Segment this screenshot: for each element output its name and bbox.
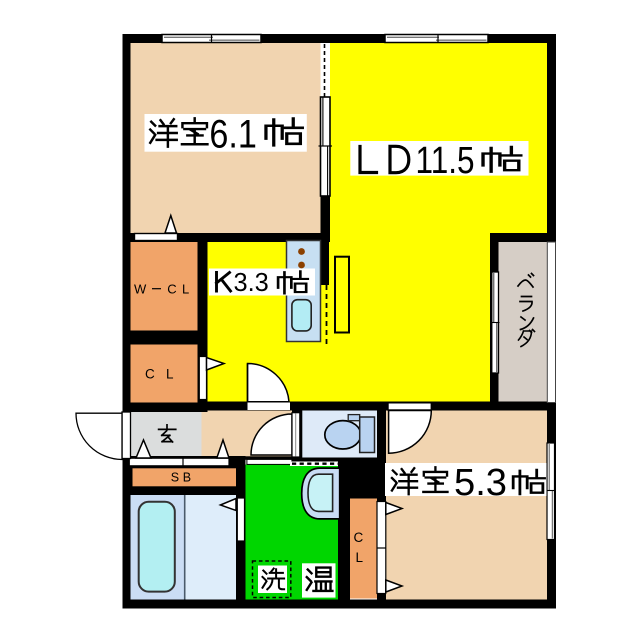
svg-text:B: B <box>183 471 191 485</box>
svg-text:L: L <box>166 367 174 382</box>
svg-text:11.5: 11.5 <box>416 140 475 182</box>
svg-text:C: C <box>354 530 364 545</box>
svg-text:S: S <box>171 471 179 485</box>
svg-text:3.3: 3.3 <box>234 267 269 297</box>
svg-text:C: C <box>145 367 155 382</box>
svg-text:L: L <box>182 282 189 297</box>
svg-text:L: L <box>356 550 364 565</box>
svg-text:6.1: 6.1 <box>209 113 257 157</box>
svg-text:W: W <box>134 282 147 297</box>
svg-text:C: C <box>167 282 176 297</box>
svg-text:5.3: 5.3 <box>454 462 507 504</box>
